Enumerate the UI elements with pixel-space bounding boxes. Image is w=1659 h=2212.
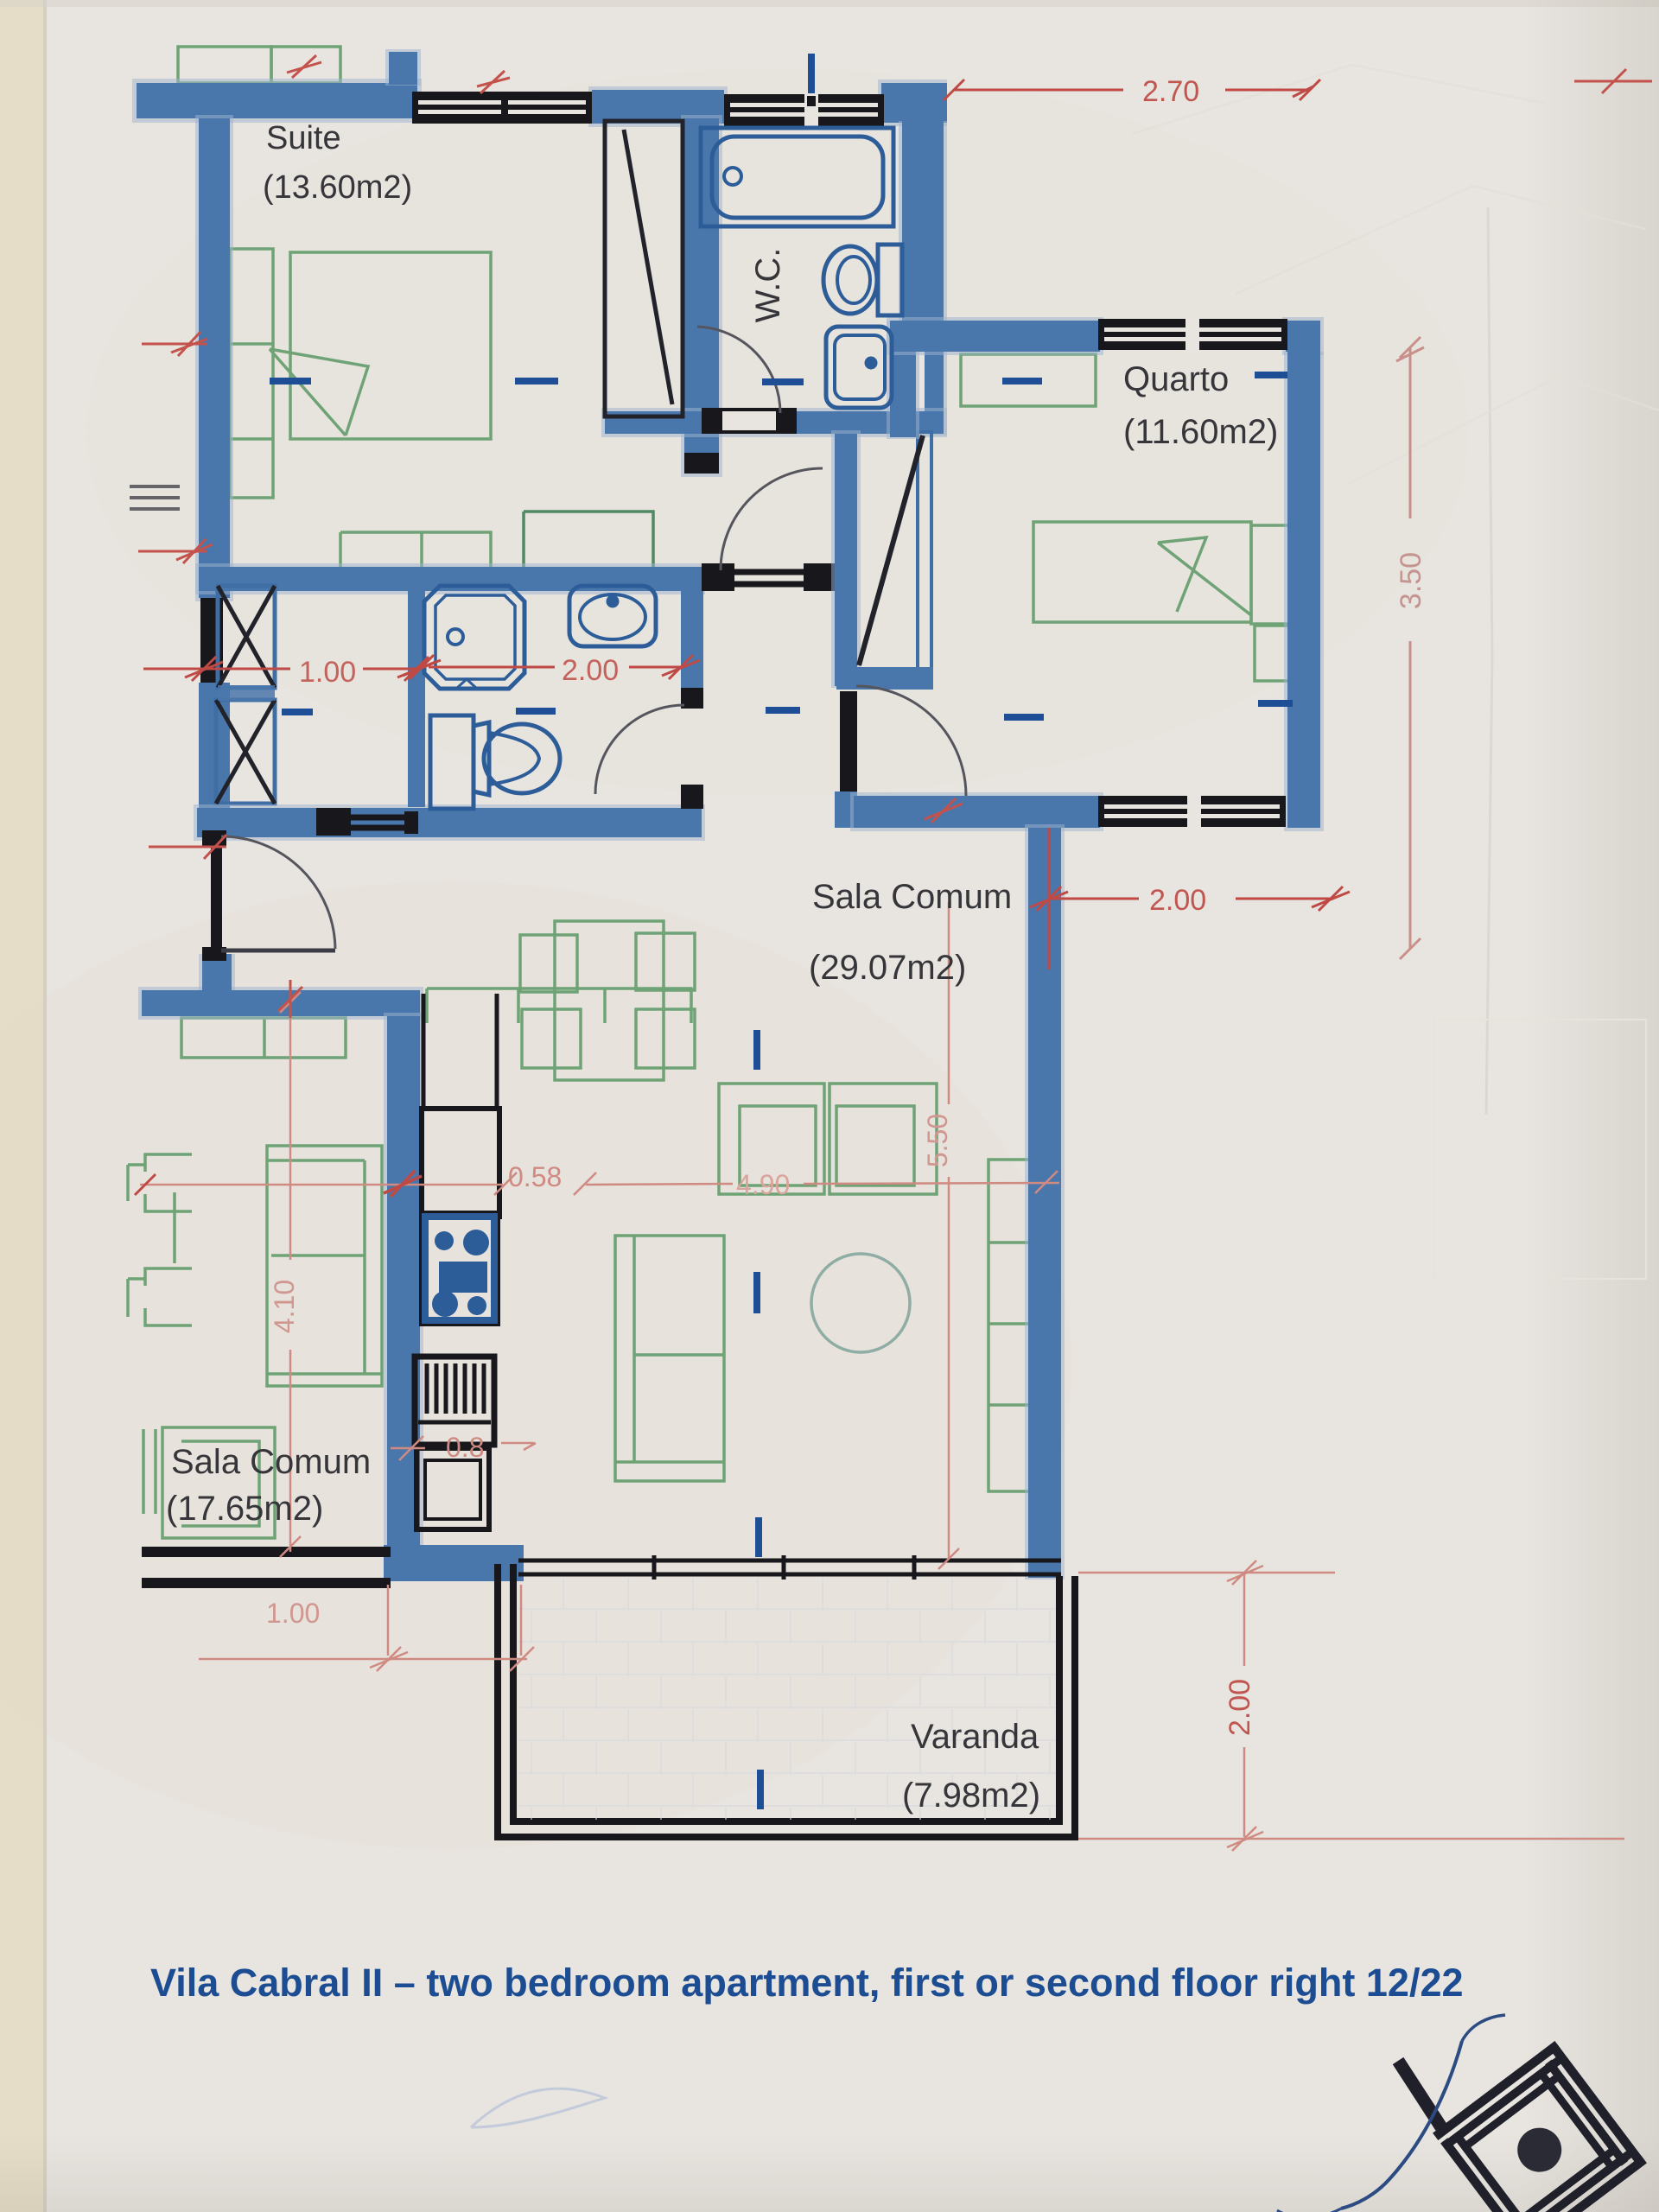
svg-text:2.00: 2.00: [1149, 884, 1206, 917]
svg-text:5.50: 5.50: [922, 1114, 953, 1167]
svg-text:(13.60m2): (13.60m2): [263, 169, 412, 206]
svg-text:(7.98m2): (7.98m2): [902, 1777, 1040, 1815]
svg-text:W.C.: W.C.: [749, 248, 787, 323]
svg-text:(11.60m2): (11.60m2): [1123, 413, 1278, 451]
svg-text:1.00: 1.00: [299, 656, 356, 689]
svg-text:4.90: 4.90: [736, 1169, 790, 1200]
svg-text:3.50: 3.50: [1395, 552, 1427, 609]
svg-text:2.00: 2.00: [1224, 1679, 1256, 1736]
svg-text:2.00: 2.00: [562, 654, 619, 687]
svg-text:Sala Comum: Sala Comum: [812, 878, 1012, 916]
svg-text:4.10: 4.10: [269, 1280, 300, 1333]
svg-text:(29.07m2): (29.07m2): [809, 949, 966, 987]
svg-text:1.00: 1.00: [266, 1598, 320, 1629]
svg-text:Suite: Suite: [266, 120, 341, 156]
svg-text:0.8: 0.8: [446, 1432, 484, 1463]
svg-text:2.70: 2.70: [1142, 75, 1199, 108]
svg-text:(17.65m2): (17.65m2): [166, 1490, 323, 1528]
svg-text:Sala Comum: Sala Comum: [171, 1443, 371, 1481]
svg-text:0.58: 0.58: [508, 1161, 562, 1192]
svg-text:Vila Cabral II – two bedroom a: Vila Cabral II – two bedroom apartment, …: [150, 1961, 1464, 2005]
svg-text:Quarto: Quarto: [1123, 360, 1229, 398]
svg-text:Varanda: Varanda: [911, 1718, 1039, 1756]
